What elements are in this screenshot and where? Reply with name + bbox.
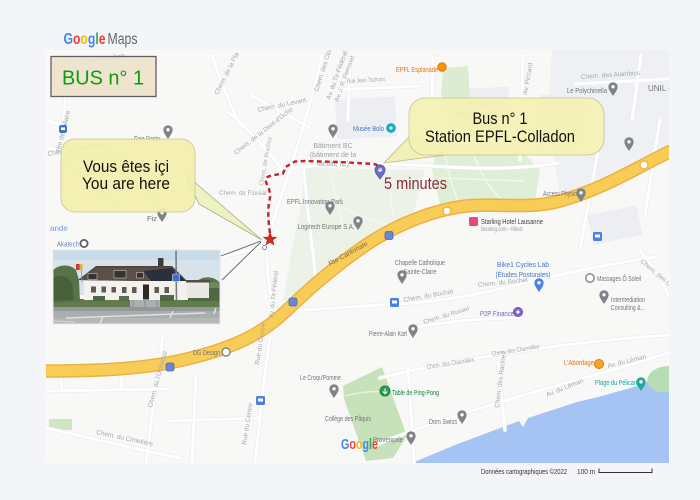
svg-text:Logitech Europe S.A.: Logitech Europe S.A.	[298, 222, 355, 231]
svg-text:DG Design: DG Design	[193, 348, 220, 357]
svg-text:Sainte-Claire: Sainte-Claire	[404, 267, 437, 276]
svg-text:Access Physio: Access Physio	[543, 189, 577, 198]
svg-text:Le Polychinella: Le Polychinella	[567, 86, 608, 95]
svg-text:Consulting &...: Consulting &...	[611, 305, 645, 312]
svg-text:EPFL Esplanade: EPFL Esplanade	[396, 65, 438, 74]
svg-text:(bâtiment de la: (bâtiment de la	[310, 152, 356, 159]
svg-text:P2P Finance: P2P Finance	[480, 309, 514, 318]
svg-text:Massages Ô Soleil: Massages Ô Soleil	[597, 274, 641, 283]
svg-text:Données cartographiques ©2022: Données cartographiques ©2022	[481, 467, 567, 476]
svg-text:Plage du Pélican: Plage du Pélican	[595, 378, 637, 387]
svg-text:Collège des Pâquis: Collège des Pâquis	[325, 414, 371, 423]
svg-text:Google: Google	[64, 31, 106, 48]
svg-text:100 m: 100 m	[577, 467, 595, 476]
svg-text:ande: ande	[50, 224, 68, 233]
svg-text:Maps: Maps	[108, 31, 138, 48]
svg-text:Station EPFL-Colladon: Station EPFL-Colladon	[425, 128, 575, 146]
svg-text:Table de Ping-Pong: Table de Ping-Pong	[392, 390, 439, 397]
svg-text:Chapelle Catholique: Chapelle Catholique	[395, 258, 445, 267]
svg-text:BUS n° 1: BUS n° 1	[62, 67, 144, 90]
svg-text:Musée Bolo: Musée Bolo	[353, 124, 384, 133]
svg-text:EPFL Innovation Park: EPFL Innovation Park	[287, 197, 343, 206]
svg-text:5 minutes: 5 minutes	[384, 175, 447, 193]
svg-text:Chem. de Floréal: Chem. de Floréal	[219, 190, 266, 197]
svg-text:Akatech: Akatech	[57, 240, 79, 249]
svg-text:You are here: You are here	[82, 175, 170, 193]
svg-text:Intermediation: Intermediation	[611, 297, 645, 304]
svg-text:Booking.com - Hôtels: Booking.com - Hôtels	[481, 227, 523, 233]
svg-text:Le Croqu'Pomme: Le Croqu'Pomme	[300, 373, 341, 382]
svg-text:Google: Google	[341, 437, 378, 453]
svg-text:Bike1 Cycles Lab: Bike1 Cycles Lab	[497, 260, 549, 269]
svg-text:Fiz: Fiz	[147, 214, 157, 223]
svg-text:Pierre-Alain Kart: Pierre-Alain Kart	[369, 329, 408, 338]
svg-text:Dom Swiss: Dom Swiss	[429, 417, 457, 426]
svg-text:Starling Hotel Lausanne: Starling Hotel Lausanne	[481, 217, 543, 226]
svg-text:L'Abordage: L'Abordage	[564, 358, 594, 367]
svg-text:Vous êtes içi: Vous êtes içi	[83, 158, 169, 176]
svg-text:Bus n° 1: Bus n° 1	[473, 110, 528, 128]
svg-text:Bâtiment BC: Bâtiment BC	[313, 143, 352, 150]
